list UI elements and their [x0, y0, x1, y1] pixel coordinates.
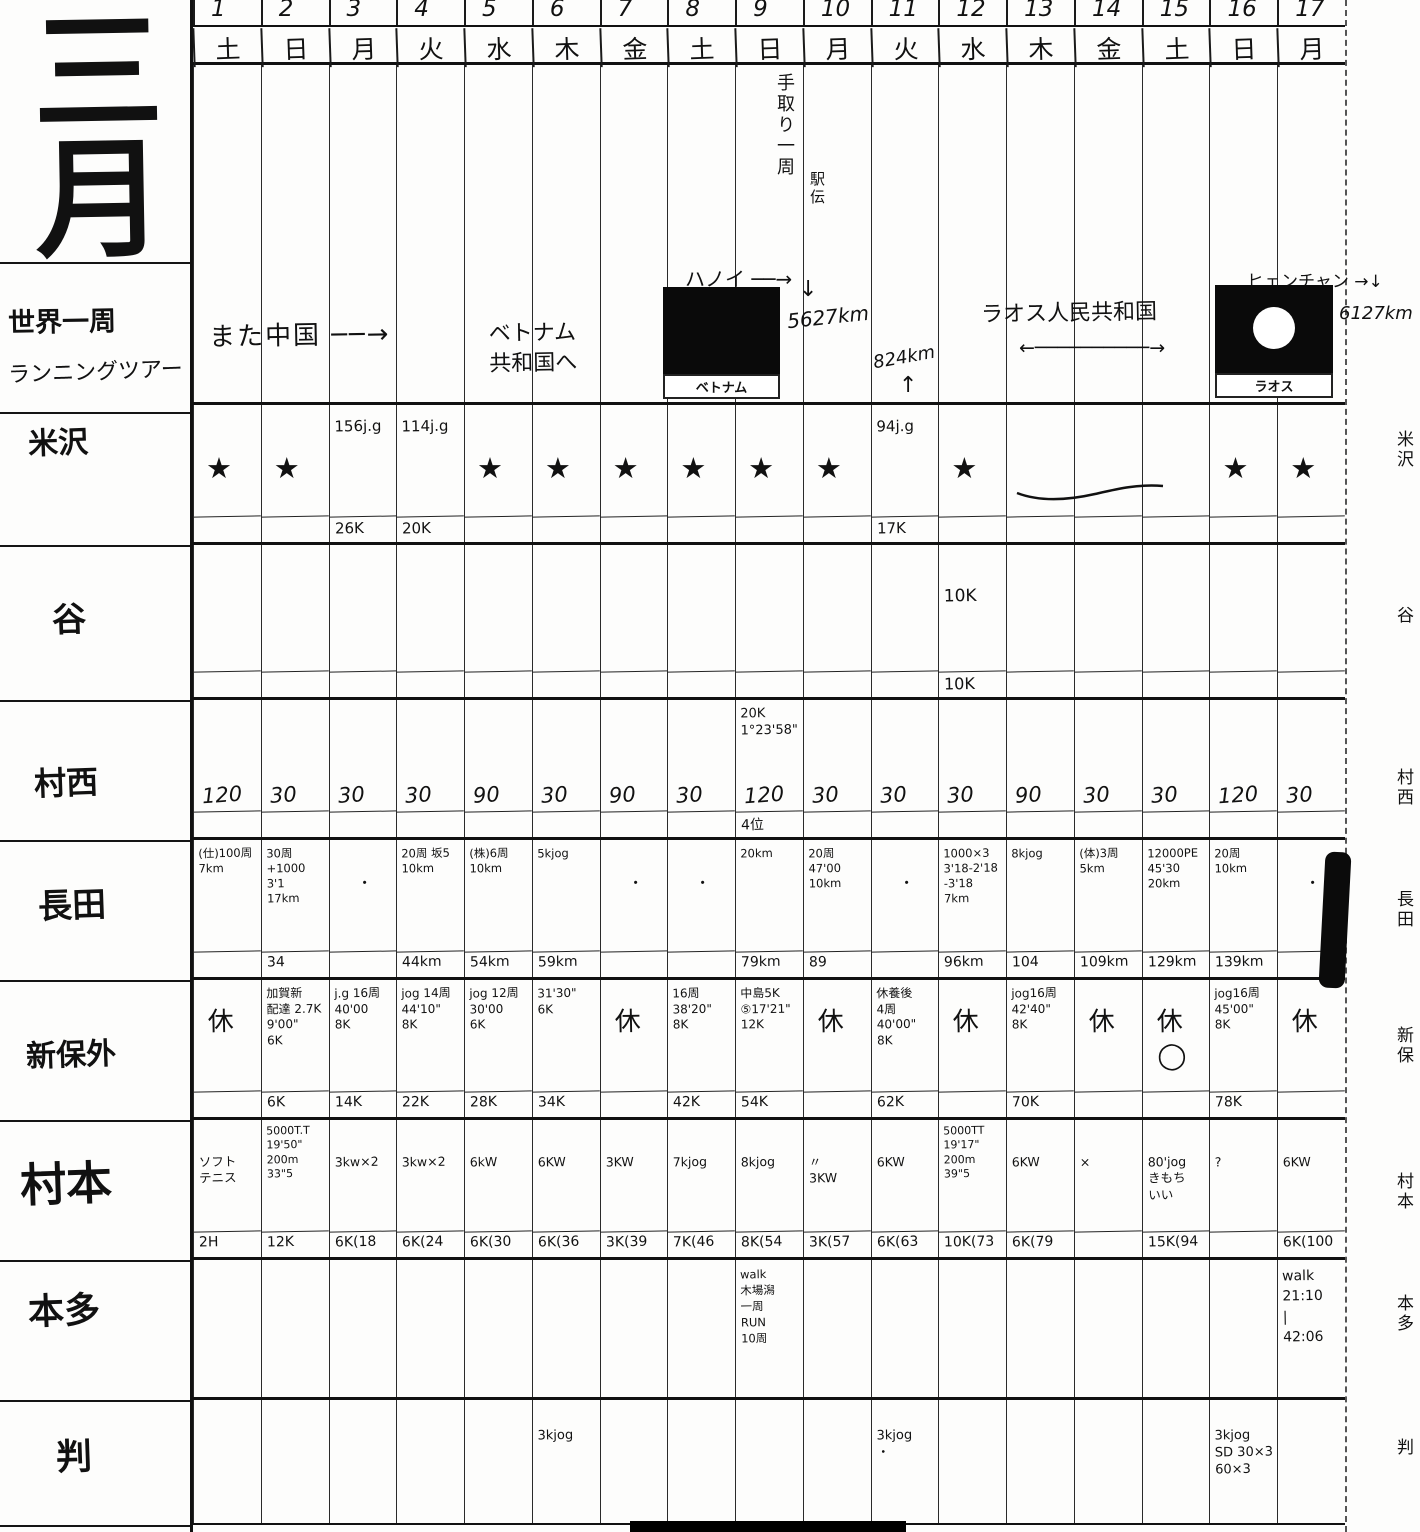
- distance-total: 6K(18: [329, 1230, 396, 1257]
- day-log-cell: [1142, 545, 1210, 697]
- day-log-cell: [532, 545, 600, 697]
- day-log-cell: [1006, 405, 1074, 542]
- day-log-cell: 30: [396, 700, 464, 837]
- day-log-cell: [1006, 1260, 1074, 1397]
- month-kanji: 三 月: [6, 8, 186, 266]
- left-panel-rule: [0, 1525, 190, 1527]
- log-entry: [328, 544, 397, 671]
- margin-label-yonezawa: 米沢: [1391, 430, 1416, 470]
- log-entry: 12000PE 45'30 20km: [1142, 839, 1211, 951]
- day-log-cell: 休: [600, 980, 668, 1117]
- minutes-value: 30: [811, 782, 839, 808]
- log-entry: (株)6周 10km: [464, 839, 533, 951]
- distance-total: [194, 950, 261, 977]
- log-entry: 6KW: [532, 1119, 601, 1231]
- distance-total: [1075, 810, 1142, 837]
- distance-total: [262, 670, 329, 697]
- day-log-cell: 6kW 6K(30: [464, 1120, 532, 1257]
- distance-total: 28K: [465, 1090, 532, 1117]
- day-log-cell: ★: [261, 405, 329, 542]
- day-log-cell: 20km 79km: [735, 840, 803, 977]
- day-log-cell: 6KW 6K(79: [1006, 1120, 1074, 1257]
- day-log-cell: [871, 545, 939, 697]
- distance-total: [668, 515, 735, 542]
- day-number-cell: 11: [871, 0, 939, 25]
- scanned-running-log-march: 三 月 世界一周 ランニングツアー 米沢 谷 村西 長田 新保外 村本 本多 判…: [0, 0, 1420, 1532]
- weekday-cell: 日: [260, 26, 329, 67]
- weekday-cell: 金: [1073, 26, 1142, 67]
- day-log-cell: [464, 1400, 532, 1523]
- china-route-note: また中国 ──→: [209, 313, 391, 353]
- log-entry: ・: [600, 839, 669, 951]
- margin-label-tani: 谷: [1391, 606, 1416, 626]
- log-entry: [803, 1259, 872, 1397]
- distance-total: [804, 515, 871, 542]
- distance-total: 44km: [397, 950, 464, 977]
- day-log-cell: [193, 1400, 261, 1523]
- day-log-cell: ・: [329, 840, 397, 977]
- distance-total: [1075, 1090, 1142, 1117]
- log-entry: [193, 544, 262, 671]
- day-log-cell: 30周 +1000 3'1 17km 34: [261, 840, 329, 977]
- day-log-cell: 20周 10km 139km: [1209, 840, 1277, 977]
- day-log-cell: 20周 坂5 10km 44km: [396, 840, 464, 977]
- day-log-cell: 30: [261, 700, 329, 837]
- star-mark: ★: [613, 454, 639, 483]
- log-entry: [261, 544, 330, 671]
- minutes-value: 30: [1285, 782, 1313, 808]
- log-entry: 20周 10km: [1210, 839, 1279, 951]
- day-log-cell: jog16周 42'40" 8K 70K: [1006, 980, 1074, 1117]
- day-log-cell: [193, 1260, 261, 1397]
- margin-label-honda: 本多: [1391, 1294, 1416, 1334]
- star-mark: ★: [1222, 454, 1248, 483]
- minutes-value: 90: [608, 782, 636, 808]
- distance-total: 6K: [262, 1090, 329, 1117]
- distance-total: 10K: [939, 670, 1006, 697]
- distance-total: [1278, 810, 1345, 837]
- day-log-cell: 90: [600, 700, 668, 837]
- distance-total: [1142, 670, 1209, 697]
- weekday-cell: 木: [531, 26, 600, 67]
- day-log-cell: [1209, 1260, 1277, 1397]
- log-entry: [735, 1399, 804, 1523]
- day-log-cell: [329, 545, 397, 697]
- day-log-cell: [261, 1260, 329, 1397]
- log-entry: [1209, 1259, 1278, 1397]
- left-panel-rule: [0, 1260, 190, 1262]
- log-row-honda: walk 木場潟 一周 RUN 10周: [193, 1260, 1345, 1400]
- distance-total: [465, 670, 532, 697]
- distance-total: [194, 1090, 261, 1117]
- vietnam-route-note: ベトナム 共和国へ: [488, 318, 577, 379]
- distance-total: [1210, 810, 1277, 837]
- log-entry: [532, 1259, 601, 1397]
- day-log-cell: 3kjog ・: [871, 1400, 939, 1523]
- log-entry: [1006, 1259, 1075, 1397]
- left-panel-rule: [0, 700, 190, 702]
- minutes-value: 30: [337, 782, 365, 808]
- day-log-cell: [1142, 1400, 1210, 1523]
- day-log-cell: 30: [329, 700, 397, 837]
- minutes-value: 30: [404, 782, 432, 808]
- distance-total: [804, 810, 871, 837]
- distance-total: [1007, 810, 1074, 837]
- log-row-shinbo: 休 加賀新 配達 2.7K 9'00" 6K 6K j.g 16周 40'00 …: [193, 980, 1345, 1120]
- log-entry: 156j.g: [329, 404, 398, 516]
- left-panel-rule: [0, 545, 190, 547]
- day-log-cell: 94j.g 17K: [871, 405, 939, 542]
- log-entry: 3kw×2: [329, 1119, 398, 1231]
- day-log-cell: [803, 545, 871, 697]
- weekday-cell: 月: [1277, 26, 1346, 67]
- right-margin: 米沢 谷 村西 長田 新保 村本 本多 判: [1345, 0, 1420, 1532]
- log-entry: 5000TT 19'17" 200m 39"5: [938, 1119, 1007, 1231]
- log-entry: 1000×3 3'18-2'18 -3'18 7km: [938, 839, 1007, 951]
- distance-total: [1278, 1090, 1345, 1117]
- weekday-cell: 火: [396, 26, 465, 67]
- log-entry: [1006, 544, 1075, 671]
- margin-label-nagata: 長田: [1391, 890, 1416, 930]
- distance-total: [194, 515, 261, 542]
- distance-total: [804, 670, 871, 697]
- distance-total: [329, 670, 396, 697]
- distance-total: [397, 810, 464, 837]
- day-log-cell: [396, 1260, 464, 1397]
- day-number-cell: 17: [1277, 0, 1345, 25]
- distance-total: [668, 670, 735, 697]
- day-log-cell: ★: [600, 405, 668, 542]
- day-log-cell: (株)6周 10km 54km: [464, 840, 532, 977]
- day-log-cell: [1209, 545, 1277, 697]
- log-entry: [735, 544, 804, 671]
- distance-total: [600, 950, 667, 977]
- distance-total: 78K: [1210, 1090, 1277, 1117]
- log-entry: 8kjog: [735, 1119, 804, 1231]
- distance-total: [939, 810, 1006, 837]
- distance-total: 54K: [736, 1090, 803, 1117]
- star-mark: ★: [748, 454, 774, 483]
- day-number-cell: 13: [1006, 0, 1074, 25]
- log-entry: 3kjog ・: [871, 1399, 940, 1523]
- day-number-cell: 7: [600, 0, 668, 25]
- log-entry: 6KW: [1277, 1119, 1346, 1231]
- distance-total: 129km: [1142, 950, 1209, 977]
- log-entry: 80'jog きもち いい: [1142, 1119, 1211, 1231]
- day-log-cell: 16周 38'20" 8K 42K: [667, 980, 735, 1117]
- star-mark: ★: [545, 454, 571, 483]
- day-log-cell: jog 14周 44'10" 8K 22K: [396, 980, 464, 1117]
- log-entry: j.g 16周 40'00 8K: [329, 979, 398, 1091]
- left-panel-rule: [0, 1400, 190, 1402]
- log-entry: (仕)100周 7km: [193, 839, 262, 951]
- margin-label-muranishi: 村西: [1391, 768, 1416, 808]
- minutes-value: 120: [1218, 782, 1260, 809]
- weekday-cell: 月: [802, 26, 871, 67]
- day-log-cell: 3kjog: [532, 1400, 600, 1523]
- day-log-cell: [261, 1400, 329, 1523]
- day-log-cell: [667, 1400, 735, 1523]
- distance-total: 96km: [939, 950, 1006, 977]
- log-entry: 8kjog: [1006, 839, 1075, 951]
- day-log-cell: 休: [1277, 980, 1345, 1117]
- left-panel-rule: [0, 840, 190, 842]
- log-entry: [1074, 1399, 1143, 1523]
- distance-total: [262, 515, 329, 542]
- day-log-cell: [329, 1260, 397, 1397]
- day-log-cell: 5kjog 59km: [532, 840, 600, 977]
- laos-route-note: ラオス人民共和国: [981, 293, 1158, 328]
- log-entry: [938, 1259, 1007, 1397]
- day-number-cell: 8: [667, 0, 735, 25]
- day-log-cell: ★: [803, 405, 871, 542]
- star-mark: ★: [951, 454, 977, 483]
- distance-total: 79km: [736, 950, 803, 977]
- log-entry: 3kw×2: [396, 1119, 465, 1231]
- log-entry: [803, 1399, 872, 1523]
- distance-total: [397, 670, 464, 697]
- day-number-row: 1234567891011121314151617: [193, 0, 1345, 27]
- log-entry: [464, 1259, 533, 1397]
- tedori-loop-note: 手取り一周: [771, 73, 797, 178]
- log-entry: 加賀新 配達 2.7K 9'00" 6K: [261, 979, 330, 1091]
- log-entry: [600, 1399, 669, 1523]
- hanoi-down-arrow: ↓: [799, 277, 817, 302]
- log-entry: walk 木場潟 一周 RUN 10周: [735, 1259, 804, 1397]
- log-entry: 3kjog SD 30×3 60×3: [1209, 1399, 1278, 1523]
- athlete-label-nagata: 長田: [37, 877, 107, 928]
- route-banner: 手取り一周 駅伝 また中国 ──→ ベトナム 共和国へ ハノイ ──→ ↓ 56…: [193, 65, 1345, 405]
- log-entry: [938, 1399, 1007, 1523]
- vietnam-flag: ベトナム: [663, 287, 780, 399]
- day-number-cell: 2: [261, 0, 329, 25]
- distance-total: 59km: [533, 950, 600, 977]
- day-log-cell: [600, 1400, 668, 1523]
- log-entry: [261, 1259, 330, 1397]
- day-log-cell: 休 ◯: [1142, 980, 1210, 1117]
- minutes-value: 120: [743, 782, 785, 809]
- midpoint-up-arrow: ↑: [899, 373, 917, 398]
- distance-total: 20K: [397, 515, 464, 542]
- distance-total: [194, 670, 261, 697]
- day-log-cell: walk 木場潟 一周 RUN 10周: [735, 1260, 803, 1397]
- log-row-han: 3kjog: [193, 1400, 1345, 1525]
- day-log-cell: [329, 1400, 397, 1523]
- distance-total: [804, 1090, 871, 1117]
- log-entry: 休: [600, 979, 669, 1091]
- log-entry: [1142, 1399, 1211, 1523]
- distance-total: [1142, 515, 1209, 542]
- minutes-value: 30: [1150, 782, 1178, 808]
- day-number-cell: 5: [464, 0, 532, 25]
- day-log-cell: 6KW 6K(36: [532, 1120, 600, 1257]
- laos-flag: ラオス: [1215, 285, 1333, 398]
- day-log-cell: j.g 16周 40'00 8K 14K: [329, 980, 397, 1117]
- day-log-cell: 120: [1209, 700, 1277, 837]
- athlete-label-muranishi: 村西: [33, 757, 99, 805]
- day-log-cell: 80'jog きもち いい 15K(94: [1142, 1120, 1210, 1257]
- distance-total: [668, 810, 735, 837]
- weekday-cell: 土: [1141, 26, 1210, 67]
- tour-subtitle-line2: ランニングツアー: [7, 351, 183, 389]
- day-log-cell: (体)3周 5km 109km: [1074, 840, 1142, 977]
- vietnam-flag-cloth: [663, 287, 780, 374]
- log-entry: [870, 1259, 939, 1397]
- log-entry: ソフト テニス: [193, 1119, 262, 1231]
- day-log-cell: [667, 1260, 735, 1397]
- log-entry: jog16周 45'00" 8K: [1210, 979, 1279, 1091]
- minutes-value: 30: [1082, 782, 1110, 808]
- day-log-cell: ソフト テニス 2H: [193, 1120, 261, 1257]
- distance-total: 6K(36: [533, 1230, 600, 1257]
- scan-bottom-bar: [630, 1521, 906, 1532]
- distance-total: 89: [804, 950, 871, 977]
- day-number-cell: 10: [803, 0, 871, 25]
- day-number-cell: 16: [1209, 0, 1277, 25]
- star-mark: ★: [206, 454, 232, 483]
- weekday-cell: 月: [328, 26, 397, 67]
- log-entry: [396, 1259, 465, 1397]
- grid-column-line: [600, 65, 668, 402]
- grid-column-line: [938, 65, 1006, 402]
- distance-total: [871, 670, 938, 697]
- log-entry: [193, 1399, 262, 1523]
- day-log-cell: 6KW 6K(63: [871, 1120, 939, 1257]
- log-entry: 休: [938, 979, 1007, 1091]
- distance-total: 10K(73: [939, 1230, 1006, 1257]
- left-panel-rule: [0, 412, 190, 414]
- star-mark: ★: [1290, 454, 1316, 483]
- day-log-cell: 8kjog 104: [1006, 840, 1074, 977]
- athlete-label-han: 判: [55, 1427, 93, 1480]
- log-entry: [193, 1259, 262, 1397]
- day-log-cell: [600, 1260, 668, 1397]
- log-entry: [1074, 1259, 1143, 1397]
- distance-total: 12K: [262, 1230, 329, 1257]
- log-entry: jog 12周 30'00 6K: [464, 979, 533, 1091]
- log-entry: walk 21:10 | 42:06: [1277, 1259, 1346, 1397]
- log-entry: 休: [193, 979, 262, 1091]
- laos-flag-caption: ラオス: [1215, 373, 1333, 398]
- log-entry: [1074, 544, 1143, 671]
- log-entry: 94j.g: [871, 404, 940, 516]
- log-entry: jog16周 42'40" 8K: [1006, 979, 1075, 1091]
- distance-total: [1142, 1090, 1209, 1117]
- weekday-cell: 木: [1006, 26, 1075, 67]
- log-entry: 3kjog: [532, 1399, 601, 1523]
- distance-total: 8K(54: [736, 1230, 803, 1257]
- day-log-cell: ・: [667, 840, 735, 977]
- day-log-cell: ★: [1277, 405, 1345, 542]
- day-log-cell: (仕)100周 7km: [193, 840, 261, 977]
- day-log-cell: 30: [803, 700, 871, 837]
- distance-total: 2H: [194, 1230, 261, 1257]
- log-row-muramoto: ソフト テニス 2H 5000T.T 19'50" 200m 33"5 12K …: [193, 1120, 1345, 1260]
- log-row-nagata: (仕)100周 7km 30周 +1000 3'1 17km 34 ・: [193, 840, 1345, 980]
- day-log-cell: [1277, 545, 1345, 697]
- log-entry: [667, 1399, 736, 1523]
- athlete-label-tani: 谷: [51, 591, 87, 641]
- distance-total: 6K(63: [871, 1230, 938, 1257]
- day-log-cell: ★: [1209, 405, 1277, 542]
- day-log-cell: ★: [667, 405, 735, 542]
- day-log-cell: 休養後 4周 40'00" 8K 62K: [871, 980, 939, 1117]
- day-log-cell: [1006, 1400, 1074, 1523]
- day-log-cell: 休: [803, 980, 871, 1117]
- distance-total: [939, 515, 1006, 542]
- day-number-cell: 4: [396, 0, 464, 25]
- distance-total: [329, 950, 396, 977]
- day-log-cell: [464, 1260, 532, 1397]
- day-log-cell: 3KW 3K(39: [600, 1120, 668, 1257]
- grid-column-line: [803, 65, 871, 402]
- distance-total: 34K: [533, 1090, 600, 1117]
- log-entry: [667, 544, 736, 671]
- day-number-cell: 1: [193, 0, 261, 25]
- distance-total: [600, 1090, 667, 1117]
- athlete-label-shinbo: 新保外: [25, 1028, 116, 1075]
- day-log-cell: ×: [1074, 1120, 1142, 1257]
- distance-total: [1210, 670, 1277, 697]
- weekday-cell: 水: [938, 26, 1007, 67]
- distance-total: [1210, 515, 1277, 542]
- star-mark: ★: [274, 454, 300, 483]
- log-entry: 20周 坂5 10km: [396, 839, 465, 951]
- log-entry: [396, 1399, 465, 1523]
- log-entry: [328, 1399, 397, 1523]
- log-entry: [1209, 544, 1278, 671]
- day-log-cell: [1074, 1260, 1142, 1397]
- minutes-value: 30: [879, 782, 907, 808]
- log-entry: 114j.g: [396, 404, 465, 516]
- distance-total: 6K(30: [465, 1230, 532, 1257]
- day-log-cell: 5000TT 19'17" 200m 39"5 10K(73: [938, 1120, 1006, 1257]
- distance-total: [533, 670, 600, 697]
- day-log-cell: [396, 1400, 464, 1523]
- distance-total: [1210, 1230, 1277, 1257]
- distance-total: 26K: [329, 515, 396, 542]
- log-entry: ・: [667, 839, 736, 951]
- distance-total: [1075, 515, 1142, 542]
- laos-span-arrow: ←──────────→: [1019, 337, 1165, 359]
- distance-total: [600, 515, 667, 542]
- day-log-cell: 156j.g 26K: [329, 405, 397, 542]
- day-log-cell: 3kw×2 6K(24: [396, 1120, 464, 1257]
- distance-total: 22K: [397, 1090, 464, 1117]
- athlete-label-honda: 本多: [27, 1281, 101, 1335]
- day-number-cell: 15: [1142, 0, 1210, 25]
- day-log-cell: 〃 3KW 3K(57: [803, 1120, 871, 1257]
- day-log-cell: [803, 1260, 871, 1397]
- grid-column-line: [329, 65, 397, 402]
- day-log-cell: [1142, 1260, 1210, 1397]
- distance-total: 14K: [329, 1090, 396, 1117]
- vietnam-flag-caption: ベトナム: [663, 374, 780, 399]
- minutes-value: 30: [676, 782, 704, 808]
- minutes-value: 30: [269, 782, 297, 808]
- weekday-cell: 日: [1209, 26, 1278, 67]
- day-log-cell: [871, 1260, 939, 1397]
- margin-label-shinbo: 新保: [1391, 1026, 1416, 1066]
- log-row-muranishi: 120 30 30: [193, 700, 1345, 840]
- distance-total: [1075, 1230, 1142, 1257]
- distance-total: 34: [262, 950, 329, 977]
- laos-flag-cloth: [1215, 285, 1333, 373]
- day-log-cell: [193, 545, 261, 697]
- day-log-cell: 90: [464, 700, 532, 837]
- distance-total: [1278, 670, 1345, 697]
- day-log-cell: [938, 1400, 1006, 1523]
